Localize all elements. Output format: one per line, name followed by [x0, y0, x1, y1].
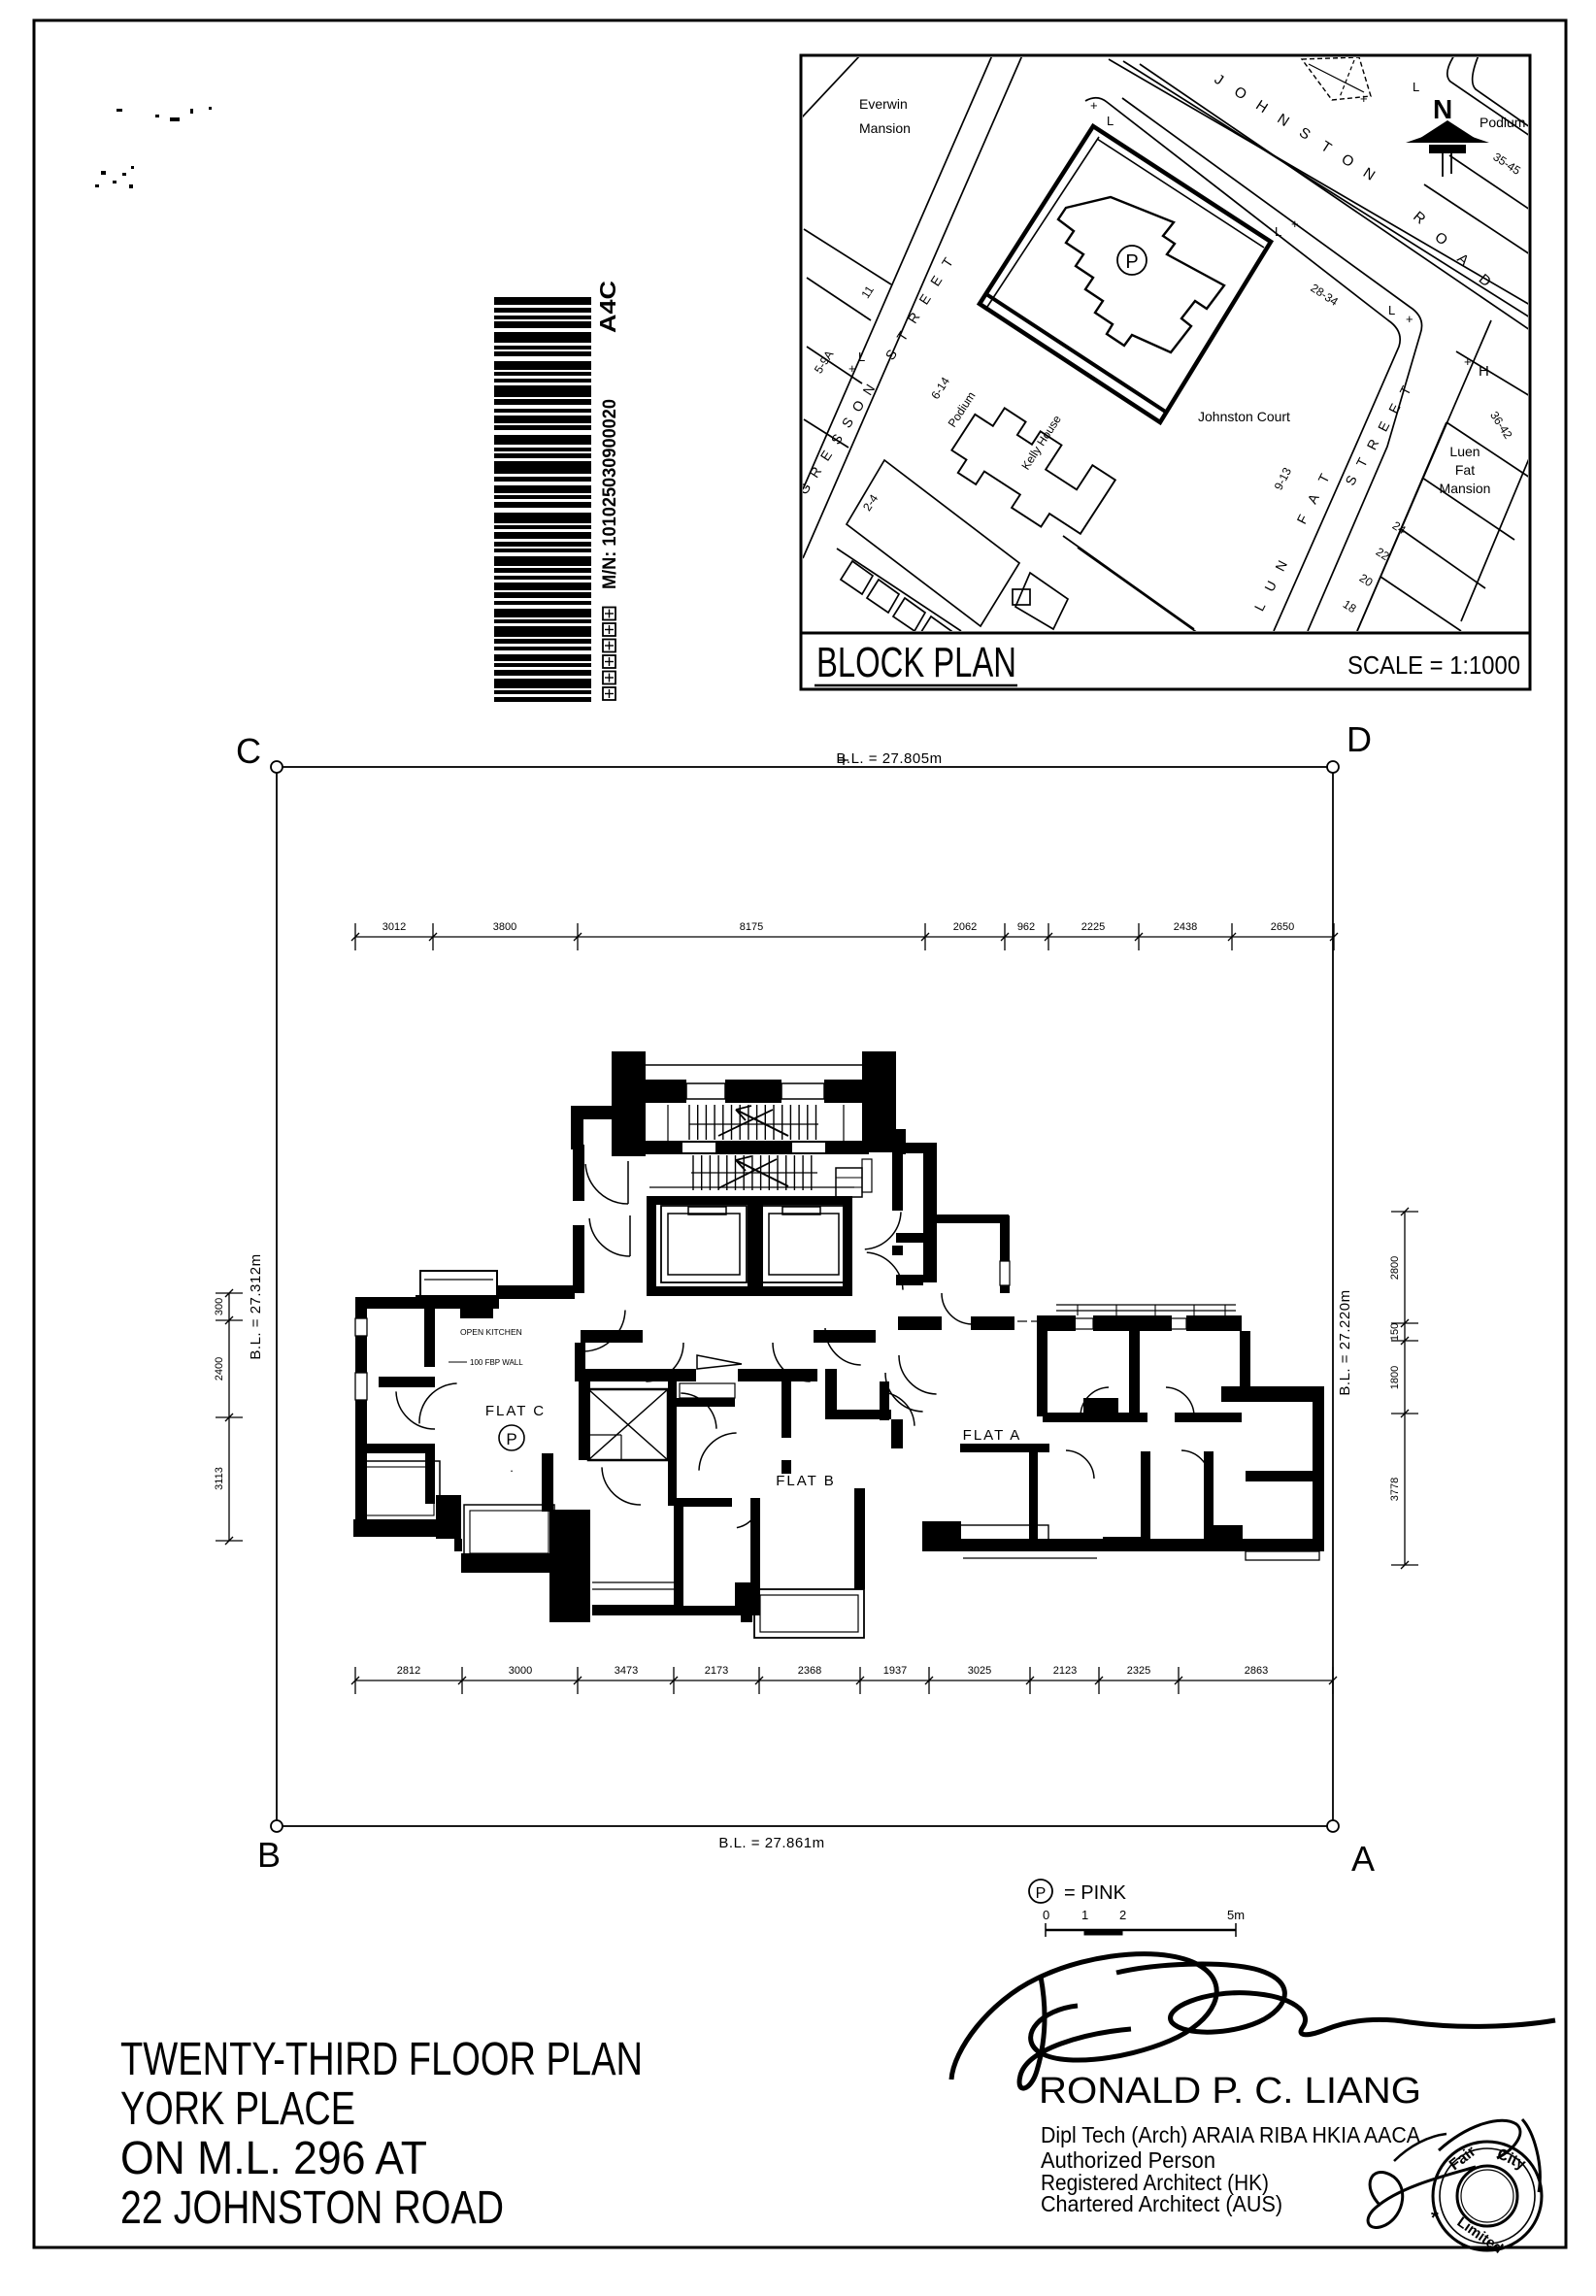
svg-text:M/N: 101025030900020: M/N: 101025030900020	[600, 399, 620, 589]
svg-text:P: P	[1125, 251, 1138, 273]
svg-text:+: +	[1090, 98, 1098, 113]
svg-text:RONALD P. C. LIANG: RONALD P. C. LIANG	[1039, 2071, 1421, 2112]
svg-text:0: 0	[1043, 1908, 1049, 1922]
svg-text:H: H	[1479, 363, 1489, 380]
svg-text:L: L	[1275, 224, 1281, 239]
svg-text:2225: 2225	[1081, 921, 1105, 933]
svg-text:3012: 3012	[382, 921, 406, 933]
svg-text:100 FBP WALL: 100 FBP WALL	[470, 1358, 523, 1367]
svg-text:2173: 2173	[705, 1665, 728, 1677]
svg-text:OPEN KITCHEN: OPEN KITCHEN	[460, 1327, 522, 1337]
svg-text:Everwin: Everwin	[859, 96, 908, 112]
svg-text:2812: 2812	[397, 1665, 420, 1677]
svg-text:2325: 2325	[1127, 1665, 1150, 1677]
svg-text:3778: 3778	[1389, 1478, 1401, 1501]
svg-text:300: 300	[214, 1298, 225, 1315]
svg-text:ON M.L. 296 AT: ON M.L. 296 AT	[120, 2133, 427, 2184]
svg-text:1937: 1937	[883, 1665, 907, 1677]
svg-text:A: A	[1351, 1839, 1375, 1879]
svg-text:150: 150	[1389, 1323, 1401, 1341]
svg-text:Mansion: Mansion	[1440, 481, 1491, 496]
svg-text:D: D	[1347, 719, 1372, 759]
svg-text:3800: 3800	[493, 921, 516, 933]
svg-text:FLAT C: FLAT C	[485, 1403, 546, 1419]
svg-text:1800: 1800	[1389, 1366, 1401, 1389]
svg-text:2863: 2863	[1245, 1665, 1268, 1677]
svg-text:3025: 3025	[968, 1665, 991, 1677]
svg-text:+: +	[1406, 312, 1413, 326]
svg-text:L: L	[1413, 80, 1419, 94]
svg-text:A4C: A4C	[595, 281, 620, 333]
svg-text:= PINK: = PINK	[1064, 1882, 1127, 1904]
svg-text:L: L	[1107, 114, 1114, 128]
svg-text:TWENTY-THIRD FLOOR PLAN: TWENTY-THIRD FLOOR PLAN	[120, 2034, 643, 2085]
svg-text:Johnston Court: Johnston Court	[1198, 409, 1290, 424]
svg-text:Mansion: Mansion	[859, 120, 911, 136]
svg-text:FLAT A: FLAT A	[963, 1427, 1022, 1444]
svg-text:Luen: Luen	[1449, 444, 1480, 459]
svg-text:L: L	[1388, 303, 1395, 317]
svg-text:Dipl Tech (Arch) ARAIA RIBA HK: Dipl Tech (Arch) ARAIA RIBA HKIA AACA	[1041, 2122, 1421, 2147]
svg-text:.: .	[510, 1460, 514, 1475]
svg-text:B: B	[257, 1835, 281, 1875]
svg-text:SCALE = 1:1000: SCALE = 1:1000	[1347, 650, 1520, 680]
svg-text:P: P	[1036, 1885, 1047, 1902]
svg-text:B.L. = 27.220m: B.L. = 27.220m	[1337, 1289, 1353, 1395]
svg-text:2368: 2368	[798, 1665, 821, 1677]
svg-text:FLAT B: FLAT B	[776, 1473, 835, 1489]
svg-text:+: +	[1464, 354, 1472, 369]
svg-text:5m: 5m	[1227, 1908, 1245, 1922]
svg-text:L: L	[858, 349, 865, 364]
svg-text:3000: 3000	[509, 1665, 532, 1677]
svg-text:962: 962	[1017, 921, 1035, 933]
svg-text:8175: 8175	[740, 921, 763, 933]
svg-text:3473: 3473	[615, 1665, 638, 1677]
svg-text:N: N	[1433, 94, 1454, 124]
svg-text:2800: 2800	[1389, 1256, 1401, 1280]
svg-text:Podium: Podium	[1480, 115, 1525, 130]
svg-text:2062: 2062	[953, 921, 977, 933]
svg-text:P: P	[506, 1430, 516, 1448]
svg-text:2123: 2123	[1053, 1665, 1077, 1677]
svg-text:1: 1	[1081, 1908, 1088, 1922]
svg-text:BLOCK PLAN: BLOCK PLAN	[816, 639, 1016, 686]
svg-text:*: *	[1431, 2208, 1439, 2229]
svg-text:B.L. = 27.805m: B.L. = 27.805m	[836, 750, 942, 767]
svg-text:B.L. = 27.312m: B.L. = 27.312m	[248, 1253, 264, 1359]
svg-text:+: +	[1291, 216, 1299, 231]
svg-text:Chartered Architect (AUS): Chartered Architect (AUS)	[1041, 2191, 1282, 2216]
svg-text:22 JOHNSTON ROAD: 22 JOHNSTON ROAD	[120, 2182, 504, 2234]
svg-text:C: C	[236, 731, 261, 771]
svg-text:Fat: Fat	[1455, 462, 1475, 478]
svg-text:+: +	[848, 361, 856, 376]
svg-text:2438: 2438	[1174, 921, 1197, 933]
svg-text:3113: 3113	[214, 1467, 225, 1490]
svg-text:2: 2	[1119, 1908, 1126, 1922]
svg-text:2650: 2650	[1271, 921, 1294, 933]
svg-text:2400: 2400	[214, 1357, 225, 1381]
svg-text:+: +	[1360, 91, 1368, 106]
svg-text:YORK PLACE: YORK PLACE	[120, 2083, 355, 2135]
svg-text:B.L. = 27.861m: B.L. = 27.861m	[718, 1835, 824, 1851]
svg-text:P: P	[464, 1306, 472, 1319]
